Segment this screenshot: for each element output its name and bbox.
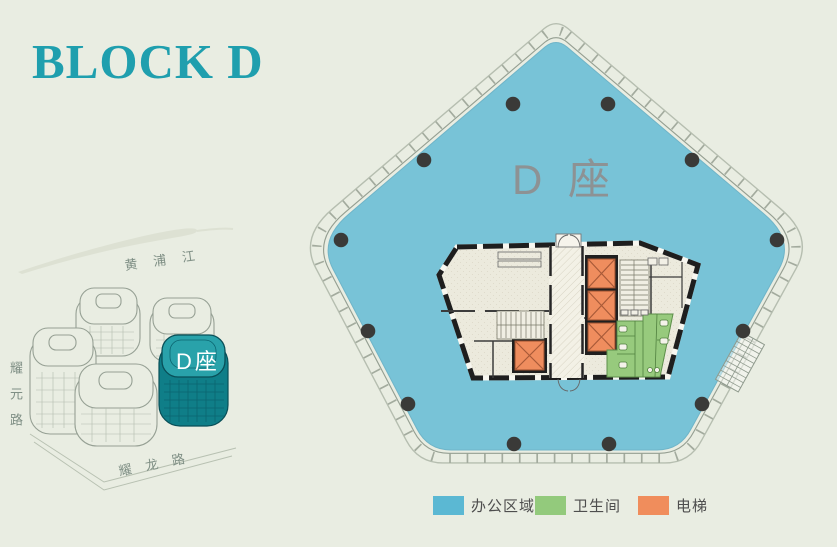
elevator-1 (588, 259, 615, 288)
core-corridor (549, 246, 584, 378)
floor-plan (310, 24, 802, 463)
elevator-4 (515, 341, 544, 370)
plan-building-d-label: D 座 (512, 146, 652, 207)
tower-4 (75, 364, 157, 446)
page-title: BLOCK D (32, 33, 264, 90)
core (439, 234, 698, 391)
page: BLOCK D 黄浦江 耀元路 耀龙路 D座 D 座 办公区域 卫生间 电梯 (0, 0, 837, 547)
elevator-3 (588, 323, 615, 351)
site-building-d-label: D座 (176, 344, 220, 376)
stair-right (620, 260, 649, 316)
stair-left (497, 311, 544, 339)
left-road-label: 耀元路 (6, 361, 25, 439)
core-top-entrance (556, 234, 581, 247)
elevator-2 (588, 291, 615, 320)
